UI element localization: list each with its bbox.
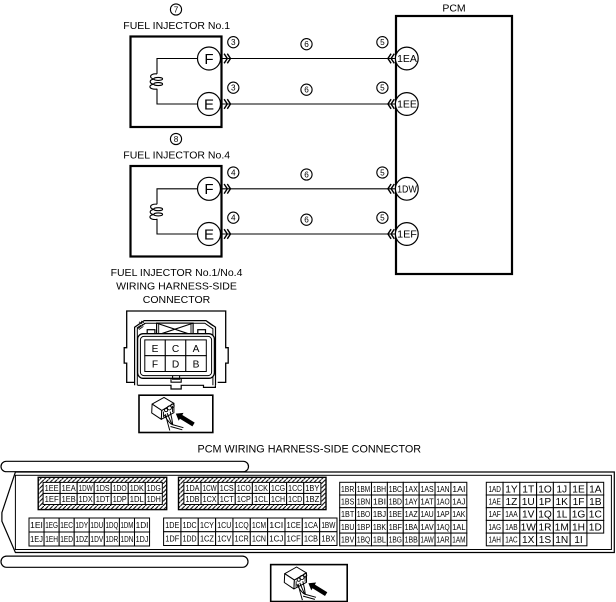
svg-text:1CU: 1CU [217,520,231,530]
svg-text:1AR: 1AR [436,535,449,545]
svg-text:1DW: 1DW [397,185,417,196]
svg-text:1AA: 1AA [505,509,518,519]
svg-text:1DP: 1DP [113,494,127,504]
svg-text:1CZ: 1CZ [200,534,215,544]
svg-text:1BD: 1BD [389,496,402,506]
svg-text:E: E [152,344,159,355]
svg-text:1DZ: 1DZ [75,534,88,544]
svg-text:1BY: 1BY [305,483,319,493]
svg-text:1CN: 1CN [252,534,266,544]
svg-text:1BV: 1BV [341,535,354,545]
svg-text:1AX: 1AX [405,484,418,494]
svg-text:F: F [152,360,158,371]
svg-text:1DT: 1DT [96,494,111,504]
svg-text:4: 4 [231,214,236,223]
svg-text:1CF: 1CF [287,534,301,544]
svg-text:1BM: 1BM [357,484,370,494]
svg-text:1BA: 1BA [405,522,418,532]
svg-text:PCM WIRING HARNESS-SIDE CONNEC: PCM WIRING HARNESS-SIDE CONNECTOR [198,443,422,455]
svg-text:1U: 1U [522,497,535,508]
svg-text:5: 5 [380,168,385,177]
svg-text:1AG: 1AG [488,522,501,532]
svg-text:6: 6 [304,86,309,95]
svg-text:1I: 1I [574,535,583,546]
svg-text:1DI: 1DI [136,520,149,530]
svg-text:1EE: 1EE [45,483,59,493]
svg-text:1EE: 1EE [397,100,417,111]
svg-text:1CY: 1CY [200,520,214,530]
svg-text:1M: 1M [555,522,569,533]
svg-text:1CC: 1CC [288,483,302,493]
svg-text:1DH: 1DH [147,494,161,504]
svg-text:7: 7 [174,5,179,14]
svg-text:8: 8 [174,135,179,144]
svg-text:1AE: 1AE [488,496,501,506]
svg-text:1BP: 1BP [357,522,370,532]
svg-text:1AL: 1AL [452,522,465,532]
svg-text:1G: 1G [572,510,586,521]
svg-text:1AS: 1AS [421,484,434,494]
svg-text:1BS: 1BS [341,496,354,506]
svg-text:1A: 1A [589,484,602,495]
svg-text:1CT: 1CT [220,494,235,504]
svg-text:1DO: 1DO [113,483,127,493]
svg-text:1C: 1C [589,510,602,521]
svg-text:1AP: 1AP [436,509,449,519]
svg-text:1CQ: 1CQ [235,520,249,530]
svg-text:1BI: 1BI [373,496,386,506]
svg-text:1BB: 1BB [405,535,418,545]
svg-text:1CH: 1CH [271,494,285,504]
svg-text:1AI: 1AI [452,484,465,494]
svg-text:1CI: 1CI [269,520,283,530]
svg-text:1F: 1F [573,497,585,508]
svg-text:1X: 1X [522,535,535,546]
svg-text:1DW: 1DW [79,483,94,493]
svg-text:1AF: 1AF [488,509,501,519]
svg-text:1CL: 1CL [254,494,268,504]
svg-text:1DJ: 1DJ [136,534,149,544]
svg-text:3: 3 [231,38,236,47]
svg-text:1AK: 1AK [452,509,465,519]
svg-text:1ED: 1ED [60,534,73,544]
svg-text:1DC: 1DC [183,520,197,530]
svg-text:1AW: 1AW [421,535,435,545]
svg-text:1CK: 1CK [254,483,268,493]
svg-text:1BR: 1BR [341,484,354,494]
svg-text:1DX: 1DX [79,494,93,504]
svg-text:1D: 1D [589,522,602,533]
svg-text:A: A [193,344,200,355]
svg-text:1BN: 1BN [357,496,370,506]
svg-text:1E: 1E [572,484,585,495]
svg-text:1CA: 1CA [304,520,318,530]
svg-text:1AN: 1AN [436,484,449,494]
svg-text:1EC: 1EC [60,520,73,530]
svg-text:1V: 1V [522,510,535,521]
svg-text:1S: 1S [539,535,552,546]
svg-text:1BW: 1BW [321,520,336,530]
svg-text:1DM: 1DM [121,520,134,530]
svg-text:6: 6 [304,216,309,225]
svg-text:1CP: 1CP [237,494,251,504]
svg-text:1DU: 1DU [90,520,103,530]
svg-text:WIRING HARNESS-SIDE: WIRING HARNESS-SIDE [116,281,237,293]
svg-text:1BJ: 1BJ [373,509,386,519]
svg-text:1DK: 1DK [130,483,144,493]
svg-text:1BC: 1BC [389,484,402,494]
svg-text:1AD: 1AD [488,484,501,494]
svg-text:1Z: 1Z [506,497,518,508]
svg-text:1DG: 1DG [147,483,161,493]
svg-text:1CV: 1CV [217,534,231,544]
svg-text:4: 4 [231,168,236,177]
svg-text:1CR: 1CR [235,534,249,544]
svg-text:1BE: 1BE [389,509,402,519]
svg-text:FUEL INJECTOR No.4: FUEL INJECTOR No.4 [123,149,230,161]
svg-text:1BO: 1BO [357,509,370,519]
svg-text:1CW: 1CW [203,483,218,493]
svg-text:1EF: 1EF [45,494,59,504]
svg-text:1DN: 1DN [121,534,134,544]
svg-text:1DF: 1DF [165,534,179,544]
svg-text:1L: 1L [556,510,568,521]
svg-text:1K: 1K [556,497,569,508]
svg-text:1CJ: 1CJ [269,534,283,544]
svg-text:1B: 1B [589,497,602,508]
svg-text:1CG: 1CG [271,483,285,493]
svg-text:1CX: 1CX [203,494,217,504]
svg-text:CONNECTOR: CONNECTOR [143,294,211,306]
svg-text:1DA: 1DA [185,483,199,493]
svg-text:1AV: 1AV [421,522,434,532]
svg-text:B: B [193,360,200,371]
svg-text:E: E [204,226,214,243]
svg-text:1EG: 1EG [45,520,58,530]
svg-text:1DE: 1DE [165,520,179,530]
svg-text:1DS: 1DS [96,483,110,493]
svg-text:1DD: 1DD [183,534,197,544]
svg-text:1EH: 1EH [45,534,58,544]
svg-text:1CO: 1CO [237,483,251,493]
svg-text:1BK: 1BK [373,522,386,532]
svg-text:PCM: PCM [442,3,465,15]
svg-text:F: F [204,51,213,68]
svg-text:E: E [204,96,214,113]
svg-text:1CE: 1CE [287,520,301,530]
svg-text:5: 5 [380,214,385,223]
svg-text:6: 6 [304,170,309,179]
svg-text:6: 6 [304,40,309,49]
svg-text:1R: 1R [538,522,551,533]
svg-text:1AH: 1AH [488,535,501,545]
svg-text:1EJ: 1EJ [30,534,43,544]
svg-text:1DQ: 1DQ [105,520,118,530]
svg-text:1DR: 1DR [105,534,118,544]
svg-text:1BT: 1BT [341,509,355,519]
svg-text:1AO: 1AO [436,496,449,506]
svg-text:F: F [204,181,213,198]
svg-text:1DV: 1DV [90,534,103,544]
svg-text:1N: 1N [555,535,568,546]
svg-text:1CD: 1CD [288,494,302,504]
svg-text:1BZ: 1BZ [305,494,320,504]
svg-text:1CM: 1CM [252,520,266,530]
svg-text:1BG: 1BG [389,535,402,545]
svg-text:1H: 1H [572,522,585,533]
svg-text:1EA: 1EA [62,483,76,493]
svg-text:1AQ: 1AQ [436,522,449,532]
svg-text:1CS: 1CS [220,483,234,493]
svg-text:1BF: 1BF [389,522,402,532]
svg-text:1BL: 1BL [373,535,386,545]
svg-text:1AU: 1AU [421,509,434,519]
svg-text:1EI: 1EI [30,520,43,530]
svg-text:D: D [172,360,179,371]
svg-text:1AY: 1AY [405,496,418,506]
svg-text:1AJ: 1AJ [452,496,465,506]
svg-text:1AC: 1AC [505,535,518,545]
svg-text:1T: 1T [522,484,534,495]
svg-text:1W: 1W [521,522,537,533]
svg-text:1BU: 1BU [341,522,354,532]
svg-text:1DB: 1DB [185,494,199,504]
svg-text:5: 5 [380,38,385,47]
svg-text:1BQ: 1BQ [357,535,370,545]
svg-text:1AT: 1AT [421,496,435,506]
svg-text:3: 3 [231,84,236,93]
svg-text:1J: 1J [556,484,567,495]
svg-text:5: 5 [380,84,385,93]
svg-text:1CB: 1CB [304,534,318,544]
svg-text:1Q: 1Q [538,510,552,521]
svg-text:1EF: 1EF [397,230,417,241]
svg-text:1AZ: 1AZ [405,509,419,519]
svg-text:FUEL INJECTOR No.1/No.4: FUEL INJECTOR No.1/No.4 [111,267,243,279]
svg-text:1DY: 1DY [75,520,88,530]
svg-text:C: C [172,344,179,355]
svg-text:FUEL INJECTOR No.1: FUEL INJECTOR No.1 [123,20,230,32]
svg-text:1AM: 1AM [452,535,465,545]
svg-text:1P: 1P [539,497,552,508]
svg-text:1O: 1O [538,484,552,495]
svg-text:1EB: 1EB [62,494,76,504]
svg-text:1BX: 1BX [321,534,335,544]
svg-text:1DL: 1DL [130,494,144,504]
svg-text:1BH: 1BH [373,484,386,494]
svg-text:1EA: 1EA [397,54,417,65]
svg-text:1AB: 1AB [505,522,518,532]
svg-text:1Y: 1Y [505,484,518,495]
